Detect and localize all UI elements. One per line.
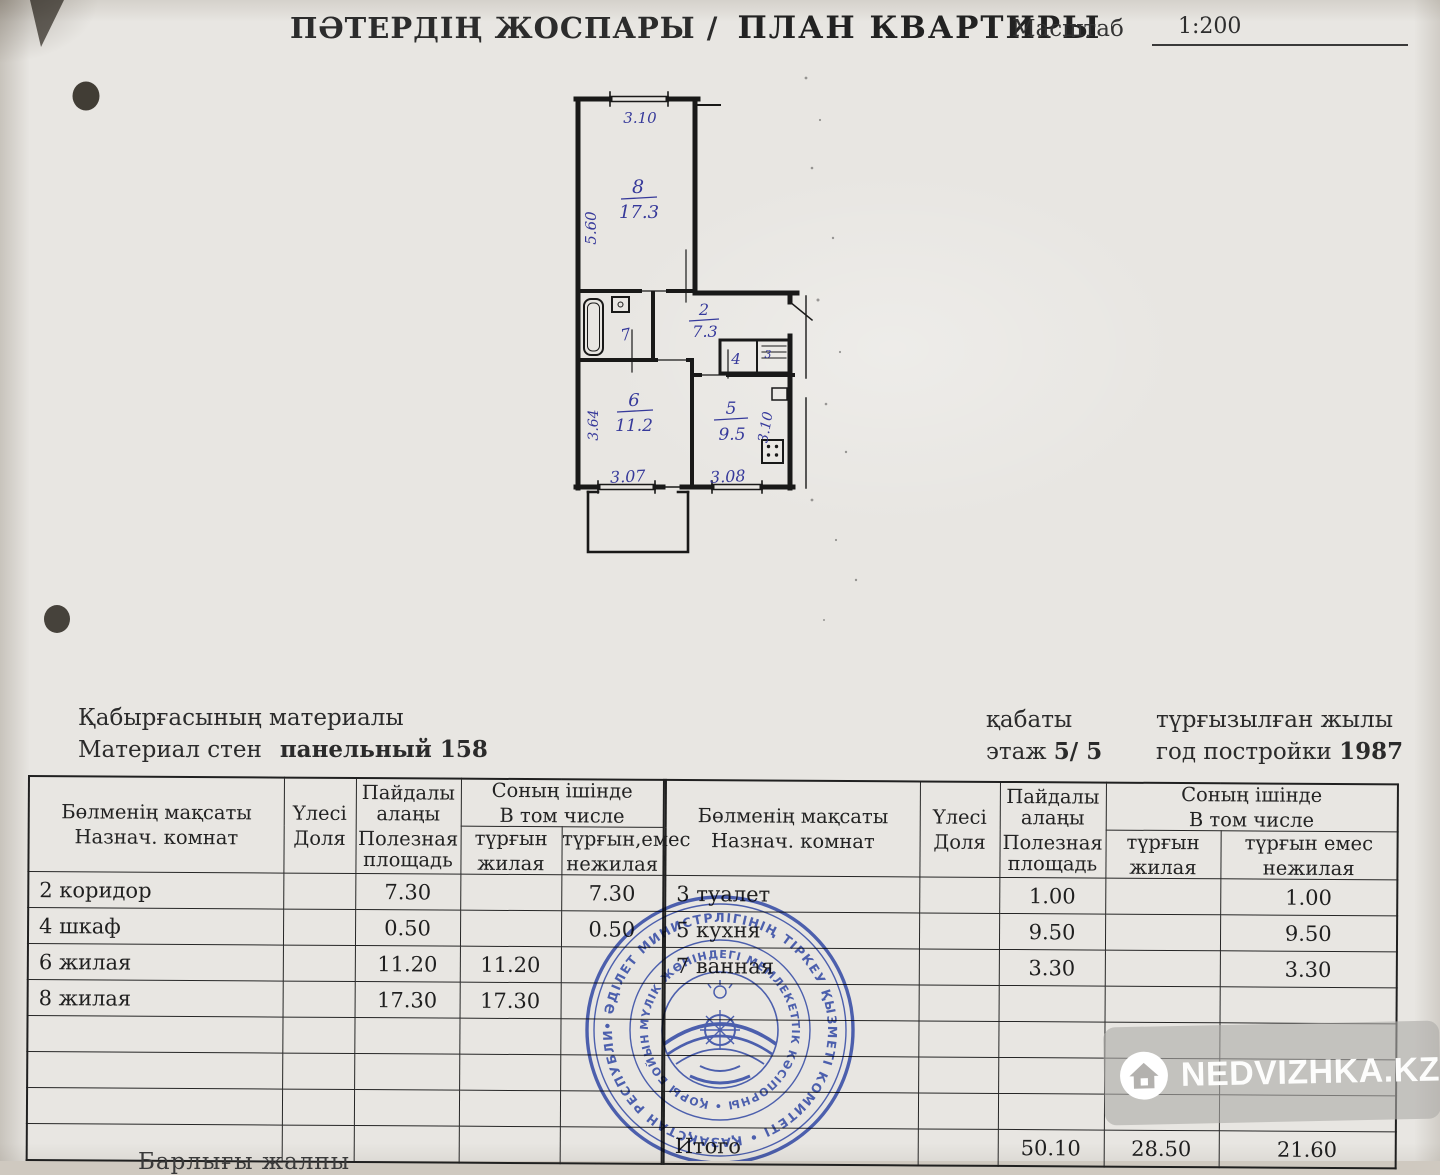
table-cell: 4 шкаф: [28, 908, 283, 946]
table-cell: [283, 909, 355, 945]
wall-material-value: панельный 158: [280, 736, 488, 763]
table-row: 4 шкаф0.500.50: [28, 908, 663, 948]
table-cell: 11.20: [460, 946, 561, 983]
table-cell: [918, 1129, 998, 1166]
year-label-ru: год постройки: [1156, 739, 1332, 765]
col-share: Үлесі Доля: [919, 781, 1000, 877]
table-row: 6 жилая11.2011.20: [28, 944, 663, 984]
col-useful-area: Пайдалы алаңы Полезная площадь: [999, 782, 1106, 878]
watermark-text: NEDVIZHKA.KZ: [1181, 1050, 1440, 1094]
table-row: [27, 1088, 662, 1128]
watermark-badge: NEDVIZHKA.KZ: [1103, 1020, 1440, 1125]
table-cell: 28.50: [1104, 1130, 1219, 1167]
wall-material-block: Қабырғасының материалы Материал стенпане…: [78, 702, 488, 766]
table-cell: 9.50: [1220, 915, 1397, 952]
table-cell: 17.30: [355, 982, 460, 1019]
table-cell: [560, 1127, 662, 1164]
table-row: Итого50.1028.5021.60: [664, 1127, 1396, 1168]
table-cell: [918, 1093, 998, 1129]
floor-label-kk: қабаты: [986, 704, 1102, 736]
table-cell: [459, 1054, 560, 1091]
table-cell: [354, 1054, 459, 1091]
col-share: Үлесі Доля: [283, 778, 356, 874]
table-header: Бөлменің мақсаты Назнач. комнат Үлесі До…: [28, 776, 664, 875]
table-row: 7 ванная3.303.30: [665, 947, 1397, 987]
year-label-kk: түрғызылған жылы: [1156, 704, 1403, 736]
table-cell: 7.30: [355, 874, 460, 911]
table-cell: 8 жилая: [28, 980, 283, 1018]
wall-material-kk: Қабырғасының материалы: [78, 702, 488, 734]
floor-value: 5/ 5: [1054, 738, 1102, 765]
table-cell: 3 туалет: [665, 875, 919, 913]
table-cell: [999, 986, 1105, 1023]
table-cell: 11.20: [355, 946, 460, 983]
scale-value: 1:200: [1152, 14, 1408, 46]
table-cell: [27, 1052, 282, 1090]
table-cell: 21.60: [1219, 1131, 1396, 1169]
table-cell: [664, 1091, 918, 1129]
table-cell: [282, 1089, 354, 1125]
table-cell: [283, 873, 355, 909]
table-cell: [283, 945, 355, 981]
col-nonliving: түрғын емес нежилая: [1220, 831, 1397, 880]
table-cell: [560, 1055, 662, 1092]
table-cell: 3.30: [1220, 951, 1397, 988]
table-cell: [561, 947, 663, 984]
table-cell: 7 ванная: [665, 947, 919, 985]
table-cell: [283, 981, 355, 1017]
area-table-left: Бөлменің мақсаты Назнач. комнат Үлесі До…: [26, 775, 665, 1165]
table-row: 3 туалет1.001.00: [665, 875, 1397, 915]
table-cell: [560, 1091, 662, 1128]
table-cell: [918, 1021, 998, 1057]
table-cell: [998, 1058, 1104, 1095]
table-cell: [561, 983, 663, 1020]
col-nonliving: түрғын,емес нежилая: [561, 827, 663, 876]
table-cell: [664, 1019, 918, 1057]
table-cell: 50.10: [998, 1130, 1104, 1167]
floor-block: қабаты этаж 5/ 5: [986, 704, 1102, 768]
table-cell: [918, 1057, 998, 1093]
footer-partial-text: Барлығы жалпы: [138, 1149, 350, 1175]
table-row: [27, 1052, 662, 1092]
scanned-document: { "colors": { "paper": "#e8e6e2", "ink":…: [0, 0, 1440, 1161]
table-row: 2 коридор7.307.30: [28, 872, 663, 912]
col-living: түрғын жилая: [1105, 830, 1220, 879]
table-cell: 17.30: [460, 982, 561, 1019]
table-header: Бөлменің мақсаты Назнач. комнат Үлесі До…: [665, 780, 1398, 880]
table-body-right: 3 туалет1.001.005 кухня9.509.507 ванная3…: [664, 875, 1398, 1168]
col-useful-area: Пайдалы алаңы Полезная площадь: [355, 778, 461, 874]
document-title: ПӘТЕРДІҢ ЖОСПАРЫ / ПЛАН КВАРТИРЫ: [290, 10, 1101, 46]
col-including: Соның ішінде В том числе: [1106, 783, 1398, 832]
table-cell: [919, 949, 999, 985]
col-living: түрғын жилая: [460, 826, 561, 875]
table-row: 5 кухня9.509.50: [665, 911, 1397, 951]
table-cell: [459, 1018, 560, 1055]
table-cell: [460, 910, 561, 947]
title-kazakh: ПӘТЕРДІҢ ЖОСПАРЫ /: [290, 11, 718, 45]
table-cell: [354, 1126, 459, 1163]
table-cell: Итого: [664, 1127, 918, 1165]
year-block: түрғызылған жылы год постройки 1987: [1156, 704, 1403, 768]
table-row: 8 жилая17.3017.30: [28, 980, 663, 1020]
table-cell: [664, 1055, 918, 1093]
table-cell: [560, 1019, 662, 1056]
table-cell: [27, 1088, 282, 1126]
year-value: 1987: [1339, 738, 1403, 765]
table-cell: 1.00: [1220, 879, 1397, 916]
table-cell: [919, 877, 999, 913]
table-cell: [27, 1016, 282, 1054]
table-cell: [282, 1017, 354, 1053]
table-cell: [1105, 986, 1220, 1023]
table-row: [27, 1016, 662, 1056]
table-cell: 6 жилая: [28, 944, 283, 982]
col-purpose: Бөлменің мақсаты Назнач. комнат: [665, 780, 920, 877]
col-purpose: Бөлменің мақсаты Назнач. комнат: [28, 776, 284, 873]
table-cell: [460, 874, 561, 911]
wall-material-ru: Материал стен: [78, 737, 262, 763]
table-cell: 7.30: [561, 875, 663, 912]
table-cell: 2 коридор: [28, 872, 283, 910]
table-body-left: 2 коридор7.307.304 шкаф0.500.506 жилая11…: [27, 872, 664, 1164]
scale-label: Масштаб: [1012, 16, 1124, 42]
table-cell: [998, 1094, 1104, 1131]
table-cell: 3.30: [999, 950, 1105, 987]
table-cell: [459, 1090, 560, 1127]
table-cell: 1.00: [999, 878, 1105, 915]
table-cell: [665, 983, 919, 1021]
house-icon: [1119, 1046, 1168, 1105]
table-cell: 0.50: [355, 910, 460, 947]
table-cell: [1105, 878, 1220, 915]
table-cell: 9.50: [999, 914, 1105, 951]
table-cell: 5 кухня: [665, 911, 919, 949]
table-cell: [354, 1090, 459, 1127]
col-including: Соның ішінде В том числе: [461, 779, 664, 828]
table-cell: [354, 1018, 459, 1055]
table-cell: [282, 1053, 354, 1089]
table-cell: 0.50: [561, 911, 663, 948]
table-cell: [1105, 914, 1220, 951]
table-cell: [1105, 950, 1220, 987]
table-cell: [459, 1126, 560, 1163]
table-cell: [1220, 987, 1397, 1024]
table-row: [665, 983, 1397, 1023]
floor-label-ru: этаж: [986, 739, 1046, 765]
table-cell: [998, 1022, 1104, 1059]
table-cell: [919, 913, 999, 949]
table-cell: [919, 985, 999, 1021]
